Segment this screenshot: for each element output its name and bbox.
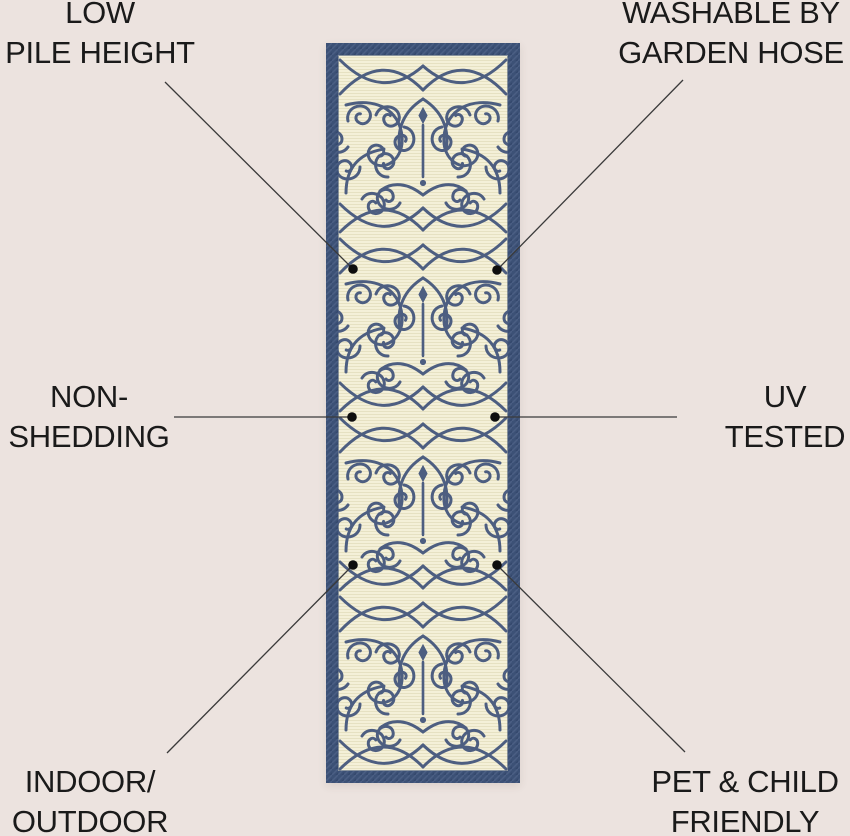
- callout-label-line: PET & CHILD: [645, 762, 845, 802]
- callout-label-line: TESTED: [695, 417, 850, 457]
- callout-label-line: FRIENDLY: [645, 802, 845, 836]
- callout-label-washable-by-garden-hose: WASHABLE BY GARDEN HOSE: [591, 0, 850, 73]
- callout-line-petchild: [497, 565, 685, 752]
- rug-image: [326, 43, 520, 783]
- callout-label-uv-tested: UV TESTED: [695, 377, 850, 457]
- callout-label-line: INDOOR/: [0, 762, 190, 802]
- callout-label-line: SHEDDING: [0, 417, 184, 457]
- callout-line-washable: [497, 80, 683, 270]
- infographic-stage: LOW PILE HEIGHT WASHABLE BY GARDEN HOSE …: [0, 0, 850, 836]
- callout-label-line: NON-: [0, 377, 184, 417]
- callout-label-line: UV: [695, 377, 850, 417]
- callout-label-low-pile-height: LOW PILE HEIGHT: [0, 0, 200, 73]
- callout-label-line: OUTDOOR: [0, 802, 190, 836]
- callout-label-line: WASHABLE BY: [591, 0, 850, 33]
- callout-label-line: LOW: [0, 0, 200, 33]
- callout-label-line: GARDEN HOSE: [591, 33, 850, 73]
- callout-label-indoor-outdoor: INDOOR/ OUTDOOR: [0, 762, 190, 836]
- callout-label-non-shedding: NON- SHEDDING: [0, 377, 184, 457]
- callout-label-line: PILE HEIGHT: [0, 33, 200, 73]
- callout-line-low-pile: [165, 82, 353, 269]
- callout-label-pet-child-friendly: PET & CHILD FRIENDLY: [645, 762, 845, 836]
